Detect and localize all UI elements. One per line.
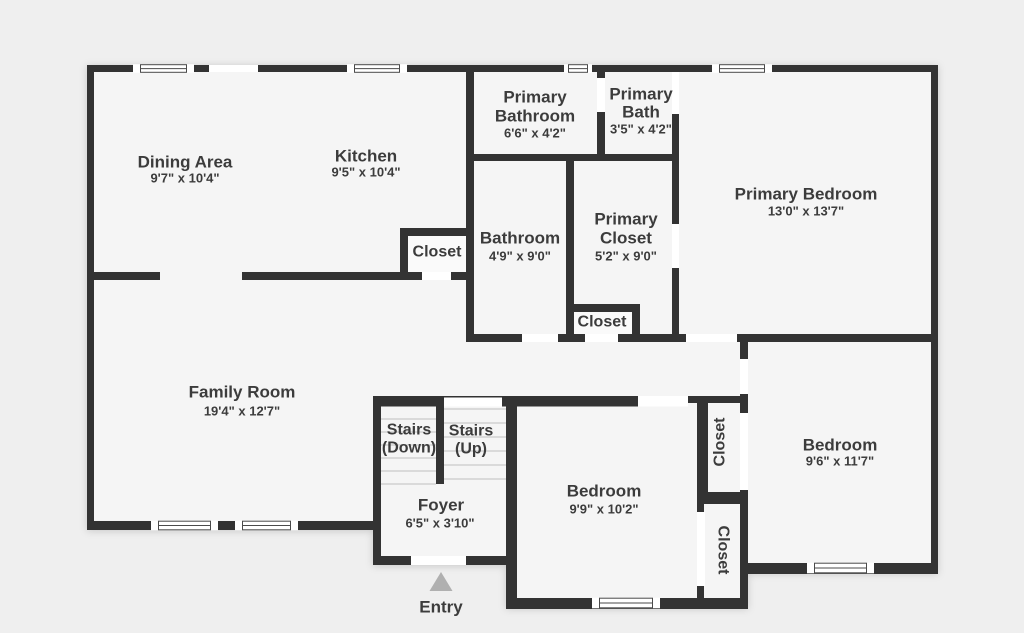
- svg-text:(Up): (Up): [455, 441, 487, 458]
- svg-text:Bedroom: Bedroom: [803, 436, 878, 455]
- svg-text:Kitchen: Kitchen: [335, 147, 397, 166]
- svg-text:13'0" x 13'7": 13'0" x 13'7": [768, 204, 844, 219]
- svg-text:Bath: Bath: [622, 103, 660, 122]
- svg-text:Stairs: Stairs: [449, 423, 494, 440]
- svg-text:Foyer: Foyer: [418, 496, 465, 515]
- svg-text:Family Room: Family Room: [189, 383, 296, 402]
- svg-text:Dining Area: Dining Area: [138, 153, 233, 172]
- svg-text:9'5" x 10'4": 9'5" x 10'4": [331, 165, 400, 180]
- svg-text:9'9" x 10'2": 9'9" x 10'2": [569, 502, 638, 517]
- svg-text:4'9" x 9'0": 4'9" x 9'0": [489, 249, 551, 264]
- svg-text:Primary: Primary: [609, 85, 673, 104]
- svg-text:Bedroom: Bedroom: [567, 482, 642, 501]
- svg-text:Stairs: Stairs: [387, 422, 432, 439]
- svg-text:Bathroom: Bathroom: [480, 229, 560, 248]
- svg-text:Closet: Closet: [600, 229, 652, 248]
- svg-text:(Down): (Down): [382, 440, 436, 457]
- svg-text:Closet: Closet: [712, 417, 729, 467]
- svg-text:Entry: Entry: [419, 598, 463, 617]
- svg-text:Primary Bedroom: Primary Bedroom: [735, 185, 878, 204]
- svg-text:Primary: Primary: [594, 210, 658, 229]
- svg-text:Closet: Closet: [413, 244, 463, 261]
- svg-text:9'6" x 11'7": 9'6" x 11'7": [806, 454, 874, 469]
- svg-text:6'5" x 3'10": 6'5" x 3'10": [405, 516, 474, 531]
- svg-text:6'6" x 4'2": 6'6" x 4'2": [504, 126, 566, 141]
- svg-text:19'4" x 12'7": 19'4" x 12'7": [204, 404, 280, 419]
- svg-text:Bathroom: Bathroom: [495, 107, 575, 126]
- svg-text:3'5" x 4'2": 3'5" x 4'2": [610, 122, 672, 137]
- svg-text:5'2" x 9'0": 5'2" x 9'0": [595, 249, 657, 264]
- svg-text:Closet: Closet: [578, 314, 628, 331]
- svg-text:Primary: Primary: [503, 88, 567, 107]
- svg-text:9'7" x 10'4": 9'7" x 10'4": [150, 171, 219, 186]
- svg-text:Closet: Closet: [715, 526, 732, 576]
